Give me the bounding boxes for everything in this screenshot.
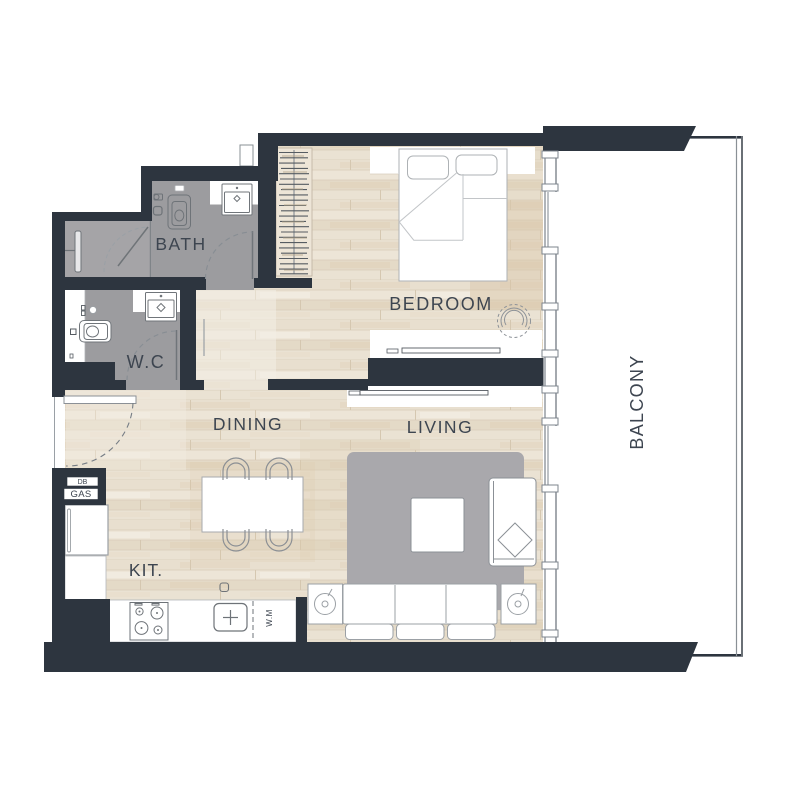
svg-text:W.C: W.C <box>127 352 166 372</box>
svg-text:LIVING: LIVING <box>407 417 473 437</box>
svg-text:GAS: GAS <box>71 489 92 500</box>
svg-text:DINING: DINING <box>213 414 283 434</box>
svg-text:W.M: W.M <box>265 609 274 627</box>
svg-text:KIT.: KIT. <box>129 560 163 580</box>
svg-text:BALCONY: BALCONY <box>627 354 647 449</box>
svg-text:BATH: BATH <box>155 234 206 254</box>
svg-text:DB: DB <box>78 479 88 486</box>
svg-text:BEDROOM: BEDROOM <box>389 294 493 314</box>
